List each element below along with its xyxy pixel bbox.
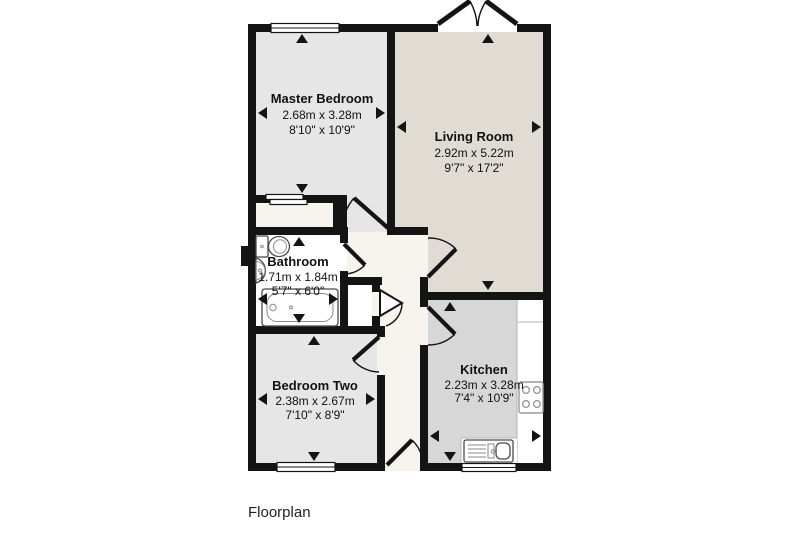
bedroom-two-metric: 2.38m x 2.67m xyxy=(275,394,354,408)
master-bedroom-name: Master Bedroom xyxy=(271,91,374,106)
bathroom-metric: 1.71m x 1.84m xyxy=(258,270,337,284)
wardrobe-floor xyxy=(256,203,333,227)
bedroom-two-name: Bedroom Two xyxy=(272,378,358,393)
window-master-bedroom xyxy=(271,24,339,33)
floorplan-svg: Master Bedroom 2.68m x 3.28m 8'10" x 10'… xyxy=(0,0,800,537)
window-kitchen xyxy=(462,464,516,472)
kitchen-name: Kitchen xyxy=(460,362,508,377)
kitchen-imperial: 7'4" x 10'9" xyxy=(454,391,513,405)
living-room-imperial: 9'7" x 17'2" xyxy=(444,161,503,175)
french-doors-entry xyxy=(438,1,517,26)
living-room-name: Living Room xyxy=(435,129,514,144)
bathroom-name: Bathroom xyxy=(267,254,328,269)
living-room-metric: 2.92m x 5.22m xyxy=(434,146,513,160)
bedroom-two-imperial: 7'10" x 8'9" xyxy=(285,408,344,422)
sliding-wardrobe-doors xyxy=(266,195,307,205)
duct xyxy=(241,246,250,266)
master-bedroom-metric: 2.68m x 3.28m xyxy=(282,108,361,122)
cupboard-floor xyxy=(348,285,372,326)
master-bedroom-imperial: 8'10" x 10'9" xyxy=(289,123,355,137)
floorplan-caption: Floorplan xyxy=(248,504,311,521)
bathroom-imperial: 5'7" x 6'0" xyxy=(272,284,324,298)
kitchen-metric: 2.23m x 3.28m xyxy=(444,378,523,392)
kitchen-sink-icon xyxy=(464,440,513,462)
window-bedroom-two xyxy=(277,463,335,472)
room-label-living-room: Living Room 2.92m x 5.22m 9'7" x 17'2" xyxy=(434,129,513,175)
